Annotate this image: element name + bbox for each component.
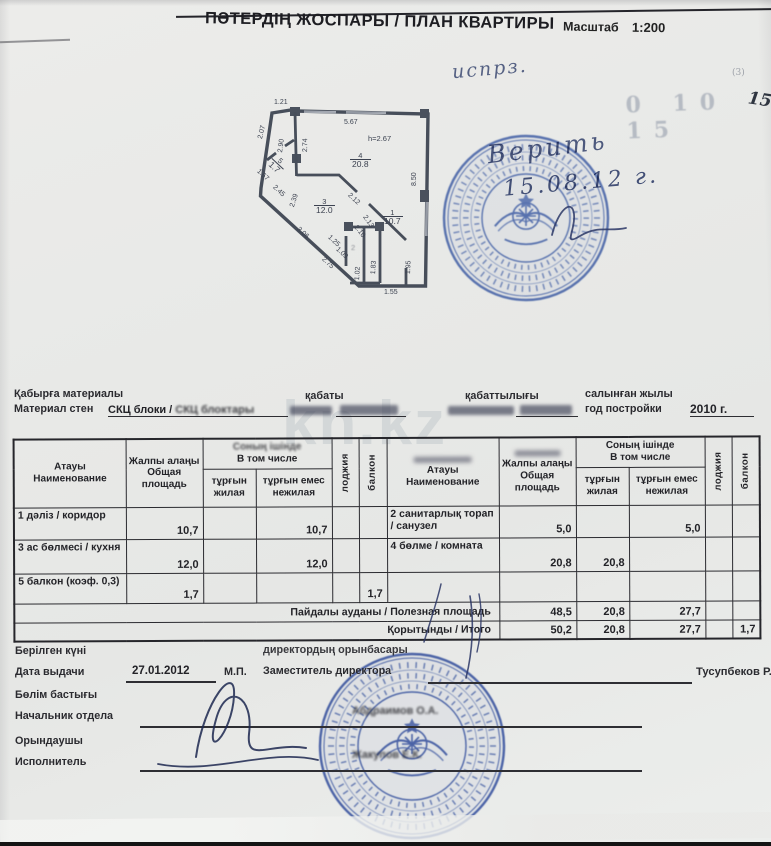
area-table: АтауыНаименование Жалпы алаңыОбщая площа…: [13, 435, 760, 642]
table-row: 5 балкон (коэф. 0,3) 1,7 1,7: [14, 570, 760, 603]
col-header-including-left: Соның ішіндеВ том числе: [203, 438, 332, 469]
top-left-rule-line: [0, 39, 70, 43]
table-row: 1 дәліз / коридор 10,7 10,7 2 санитарлық…: [14, 504, 760, 539]
department-head-label-ru: Начальник отдела: [15, 710, 113, 722]
floor-plan: 1.21 2.07 2.90 2.74 5.67 h=2.67 8.50 1.6…: [238, 96, 443, 321]
col-header-balcony-left: балкон: [359, 438, 387, 506]
deputy-signature-line: [428, 682, 692, 684]
department-head-name: Абдраимов О.А.: [352, 705, 438, 717]
round-official-stamp-top: [441, 133, 611, 308]
handwritten-note: испрз.: [451, 55, 528, 84]
col-header-total-left: Жалпы алаңыОбщая площадь: [126, 439, 203, 507]
deputy-director-label-ru: Заместитель директора: [263, 665, 391, 677]
col-header-loggia-right: лоджия: [705, 436, 732, 504]
storeys-value-underline: .: [516, 404, 578, 417]
height-label: h=2.67: [368, 134, 391, 143]
wall-material-label-kz: Қабырға материалы: [14, 388, 123, 400]
storeys-label-kz: қабаттылығы: [465, 390, 539, 402]
col-header-total-right: Жалпы алаңыОбщая площадь: [499, 437, 576, 505]
col-header-nonliving-left: тұрғын емеснежилая: [256, 468, 332, 506]
dim-label: 8.50: [411, 172, 418, 186]
storeys-label-ru-smeared: [448, 406, 514, 415]
executor-signature-line: [140, 770, 642, 772]
handwritten-signature-bottom: [196, 683, 306, 757]
paper-bottom-shading: [0, 812, 771, 846]
scan-bottom-edge: [0, 842, 771, 846]
dim-label: 1.21: [274, 99, 288, 106]
scale-value: 1:200: [632, 20, 665, 36]
department-head-label-kz: Бөлім бастығы: [15, 689, 97, 701]
dim-label: 5.67: [344, 119, 358, 126]
handwritten-corner-number: 15: [747, 88, 771, 111]
issue-date-label-ru: Дата выдачи: [15, 666, 84, 678]
dim-label: 1.95: [405, 260, 412, 274]
col-header-including-right: Соның ішіндеВ том числе: [576, 437, 705, 468]
executor-label-ru: Исполнитель: [15, 756, 86, 768]
room-label-3: 3 12.0: [314, 198, 335, 215]
storeys-value-smeared: [520, 405, 572, 415]
dim-label: 1.02: [354, 266, 362, 280]
col-header-name-right: АтауыНаименование: [387, 438, 499, 506]
deputy-director-label-kz: директордың орынбасары: [263, 644, 408, 656]
col-header-nonliving-right: тұрғын емеснежилая: [629, 467, 705, 505]
wall-material-value: СКЦ блоки / СКЦ блоктары: [108, 404, 288, 417]
wall-material-label-ru: Материал стен: [14, 403, 93, 415]
dim-label: 2.74: [302, 138, 309, 152]
col-header-living-right: тұрғынжилая: [576, 467, 629, 505]
year-built-label-ru: год постройки: [585, 403, 662, 415]
issue-date-value: 27.01.2012: [132, 665, 190, 677]
deputy-director-name: Тусупбеков Р.Р.: [696, 666, 771, 678]
area-table-grid: АтауыНаименование Жалпы алаңыОбщая площа…: [13, 435, 762, 642]
scanned-floor-plan-document: ПӘТЕРДІҢ ЖОСПАРЫ / ПЛАН КВАРТИРЫ Масштаб…: [0, 0, 771, 846]
scale-label: Масштаб: [563, 20, 619, 35]
faint-corner-small-mark: (3): [732, 68, 745, 78]
col-header-name-left: АтауыНаименование: [14, 439, 126, 507]
col-header-loggia-left: лоджия: [332, 438, 359, 506]
grand-total-row: Қорытынды / Итого 50,2 20,8 27,7 1,7: [14, 619, 760, 641]
col-header-living-left: тұрғынжилая: [203, 469, 256, 507]
year-built-label-kz: салынған жылы: [585, 388, 673, 400]
dim-label: 1.83: [370, 260, 378, 274]
room-label-1: 1 10.7: [382, 209, 403, 226]
issue-date-label-kz: Берілген күні: [15, 645, 86, 657]
year-built-value: 2010 г.: [690, 402, 754, 417]
issue-date-underline: [126, 681, 216, 683]
dim-label: 1.55: [384, 289, 398, 296]
executor-name: Жакупов Е.К.: [352, 749, 422, 761]
room-label-2: 2: [351, 244, 355, 251]
col-header-balcony-right: балкон: [732, 436, 760, 504]
head-signature-line: [140, 726, 642, 728]
room-label-4: 4 20.8: [350, 152, 371, 169]
floor-plan-walls: [238, 96, 443, 321]
executor-label-kz: Орындаушы: [15, 735, 83, 747]
table-row: 3 ас бөлмесі / кухня 12,0 12,0 4 бөлме /…: [14, 536, 760, 573]
mp-seal-placeholder: М.П.: [224, 666, 247, 678]
